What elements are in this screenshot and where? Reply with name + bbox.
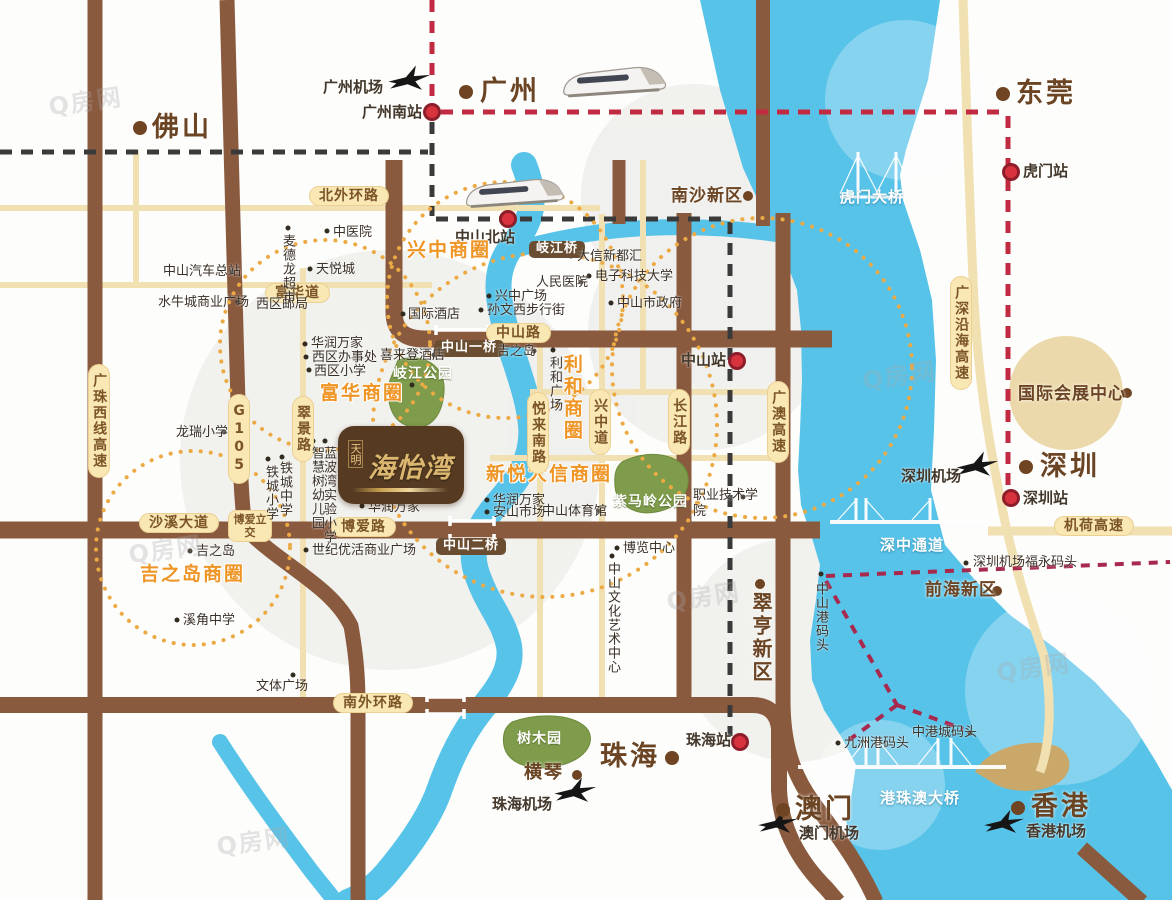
watermark-layer: Q房网Q房网Q房网Q房网Q房网Q房网 [0, 0, 1172, 900]
watermark: Q房网 [860, 351, 939, 396]
watermark: Q房网 [994, 643, 1073, 688]
watermark: Q房网 [46, 77, 125, 122]
watermark: Q房网 [214, 817, 293, 862]
project-logo: 天明 海怡湾 [338, 426, 464, 504]
logo-swoosh [352, 488, 448, 492]
watermark: Q房网 [126, 525, 205, 570]
watermark: Q房网 [664, 572, 743, 617]
project-brand: 天明 [348, 440, 363, 468]
map-canvas: 佛山广州东莞深圳珠海澳门香港横琴南沙新区前海新区国际会展中心翠亨新区广州机场广州… [0, 0, 1172, 900]
project-name: 海怡湾 [368, 446, 452, 485]
